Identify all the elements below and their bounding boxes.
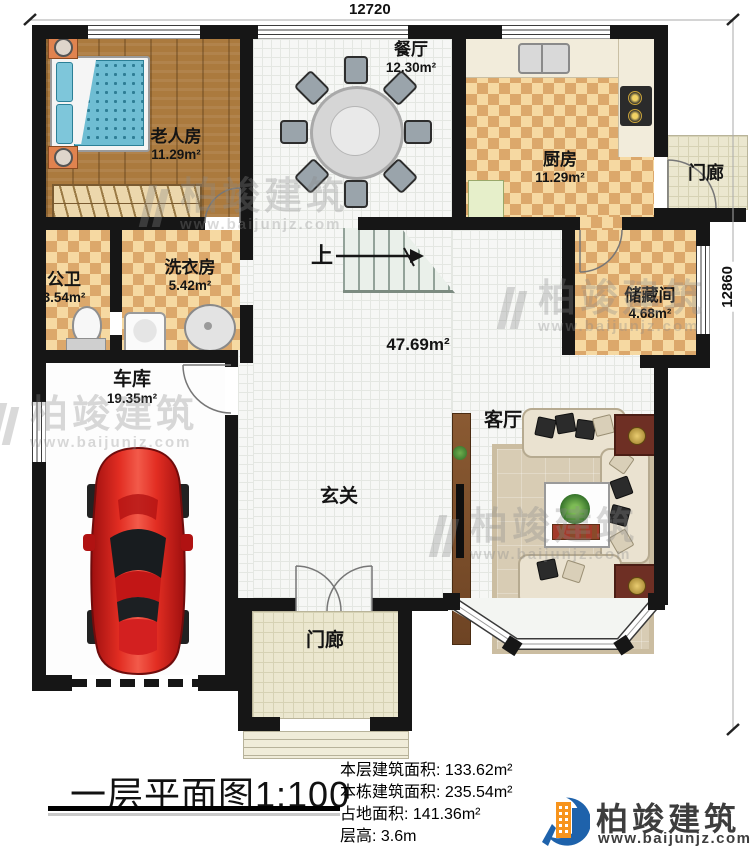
door-arc-storage <box>580 230 622 272</box>
label-kitchen: 厨房11.29m² <box>515 150 605 185</box>
stat-line: 占地面积: 141.36m² <box>340 804 513 826</box>
label-garage: 车库19.35m² <box>82 369 182 406</box>
title-underline-shadow <box>48 813 340 816</box>
label-porch-bottom: 门廊 <box>290 630 360 652</box>
caption-bar: 一层平面图1:100 本层建筑面积: 133.62m² 本栋建筑面积: 235.… <box>0 760 750 855</box>
label-porch-top: 门廊 <box>668 163 744 184</box>
brand-logo-icon <box>538 794 590 848</box>
stats-block: 本层建筑面积: 133.62m² 本栋建筑面积: 235.54m² 占地面积: … <box>340 760 513 848</box>
door-arc-entry-right <box>327 566 372 611</box>
label-bedroom: 老人房11.29m² <box>126 127 226 162</box>
label-living: 客厅 <box>470 410 536 432</box>
stairs-arrow-head <box>410 249 424 263</box>
label-laundry: 洗衣房5.42m² <box>140 258 240 293</box>
label-entry: 玄关 <box>306 486 372 508</box>
dimension-right-label: 12860 <box>719 262 736 312</box>
logo-building-orange <box>556 802 571 838</box>
door-arc-bedroom <box>205 188 240 223</box>
stat-line: 本栋建筑面积: 235.54m² <box>340 782 513 804</box>
label-hall-area: 47.69m² <box>368 335 468 355</box>
floor-plan-page: 12720 12860 老人房11.29m² 餐厅12.30m² 厨房11.29… <box>0 0 750 855</box>
label-bath: 公卫3.54m² <box>24 270 104 305</box>
logo-base <box>542 824 556 846</box>
label-storage: 储藏间4.68m² <box>595 286 705 321</box>
door-arc-garage <box>183 365 231 413</box>
stat-line: 本层建筑面积: 133.62m² <box>340 760 513 782</box>
door-arc-entry-left <box>296 566 341 611</box>
logo-building-blue <box>572 808 581 836</box>
label-stairs-up: 上 <box>306 243 338 268</box>
dimension-top-label: 12720 <box>345 1 395 18</box>
stat-line: 层高: 3.6m <box>340 826 513 848</box>
label-dining: 餐厅12.30m² <box>366 40 456 75</box>
brand-url: www.baijunjz.com <box>598 830 750 847</box>
title-underline <box>48 806 340 811</box>
